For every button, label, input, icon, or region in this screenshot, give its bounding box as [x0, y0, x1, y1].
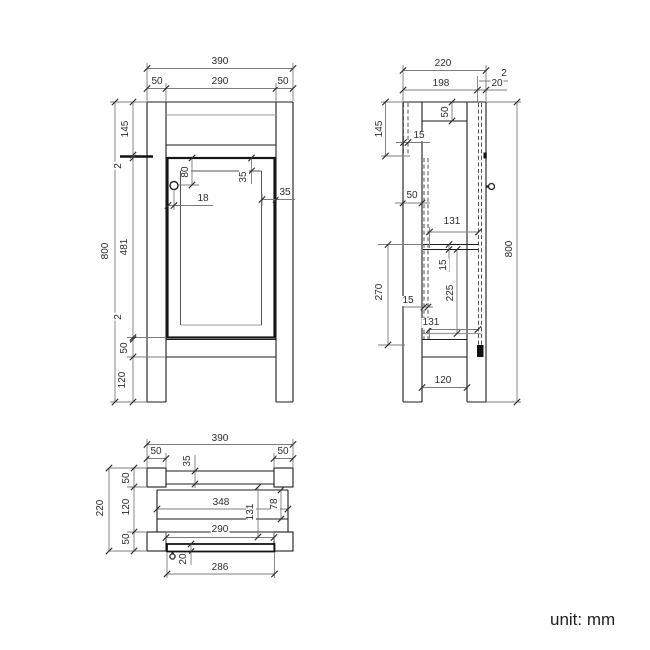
door-top-edge-mark — [484, 153, 487, 159]
dim-side-shelf-depth-lower: 131 — [422, 318, 441, 328]
dim-front-right-stile-width: 50 — [276, 77, 289, 87]
door-knob-side-cap — [489, 184, 495, 190]
drawing-canvas — [0, 0, 650, 650]
cabinet-door-plan — [167, 544, 275, 552]
bottom-view — [106, 439, 296, 578]
dim-side-overall-depth: 220 — [434, 59, 453, 69]
dim-front-bottom-rail-height: 50 — [120, 341, 130, 354]
dim-bottom-front-rail-depth: 78 — [270, 497, 280, 510]
dim-side-back-panel-lower: 15 — [401, 296, 414, 306]
dim-bottom-right-leg-width: 50 — [276, 447, 289, 457]
dim-bottom-carcass-width: 348 — [212, 498, 231, 508]
dim-front-door-stile: 35 — [278, 188, 291, 198]
dim-front-door-top-rail: 35 — [239, 170, 249, 183]
technical-drawing-page: 390 50 290 50 800 145 2 481 2 50 120 80 … — [0, 0, 650, 650]
dim-side-top-rail-height: 50 — [441, 105, 451, 118]
dim-side-carcass-depth: 198 — [432, 79, 451, 89]
dim-bottom-overall-width: 390 — [211, 434, 230, 444]
dim-bottom-left-leg-width: 50 — [149, 447, 162, 457]
dim-front-top-section-height: 145 — [121, 120, 131, 139]
unit-note: unit: mm — [550, 610, 615, 630]
dim-front-door-height: 481 — [120, 238, 130, 257]
dim-front-knob-offset-top: 80 — [181, 165, 191, 178]
back-right-leg — [274, 468, 293, 487]
dim-bottom-inner-depth: 131 — [246, 503, 256, 522]
door-knob-front — [170, 182, 178, 190]
dim-side-shelf-depth-upper: 131 — [443, 217, 462, 227]
dim-bottom-front-leg-depth: 50 — [122, 532, 132, 545]
dim-front-overall-width: 390 — [211, 57, 230, 67]
dim-side-door-thickness: 20 — [490, 79, 503, 89]
dim-front-opening-width: 290 — [211, 77, 230, 87]
dim-front-bottom-gap: 2 — [114, 313, 124, 321]
dim-bottom-overall-depth: 220 — [96, 499, 106, 518]
door-knob-bottom-cap — [170, 554, 175, 559]
dim-bottom-opening-width: 290 — [211, 525, 230, 535]
dim-side-leg-width: 50 — [405, 191, 418, 201]
dim-bottom-back-leg-depth: 50 — [122, 471, 132, 484]
dim-side-shelf-thickness: 15 — [439, 258, 449, 271]
dim-side-lower-section-height: 270 — [375, 283, 385, 302]
dim-bottom-door-width: 286 — [211, 563, 230, 573]
front-left-leg — [147, 532, 166, 551]
dim-bottom-back-rail-depth: 35 — [183, 454, 193, 467]
dim-side-overall-height: 800 — [505, 240, 515, 259]
dim-side-leg-spacing: 120 — [434, 376, 453, 386]
dim-front-leg-height: 120 — [118, 371, 128, 390]
back-left-leg — [147, 468, 166, 487]
dim-bottom-door-thickness: 20 — [179, 552, 189, 565]
dim-side-shelf-to-bottom: 225 — [446, 284, 456, 303]
front-view — [110, 63, 296, 405]
dim-side-top-section-height: 145 — [375, 120, 385, 139]
dim-side-back-panel-upper: 15 — [412, 131, 425, 141]
dim-front-top-gap: 2 — [114, 162, 124, 170]
dim-front-knob-offset-side: 18 — [196, 194, 209, 204]
door-bottom-edge-mark — [477, 345, 484, 357]
dim-front-overall-height: 800 — [101, 242, 111, 261]
dim-front-left-stile-width: 50 — [150, 77, 163, 87]
dim-bottom-mid-depth: 120 — [122, 498, 132, 517]
